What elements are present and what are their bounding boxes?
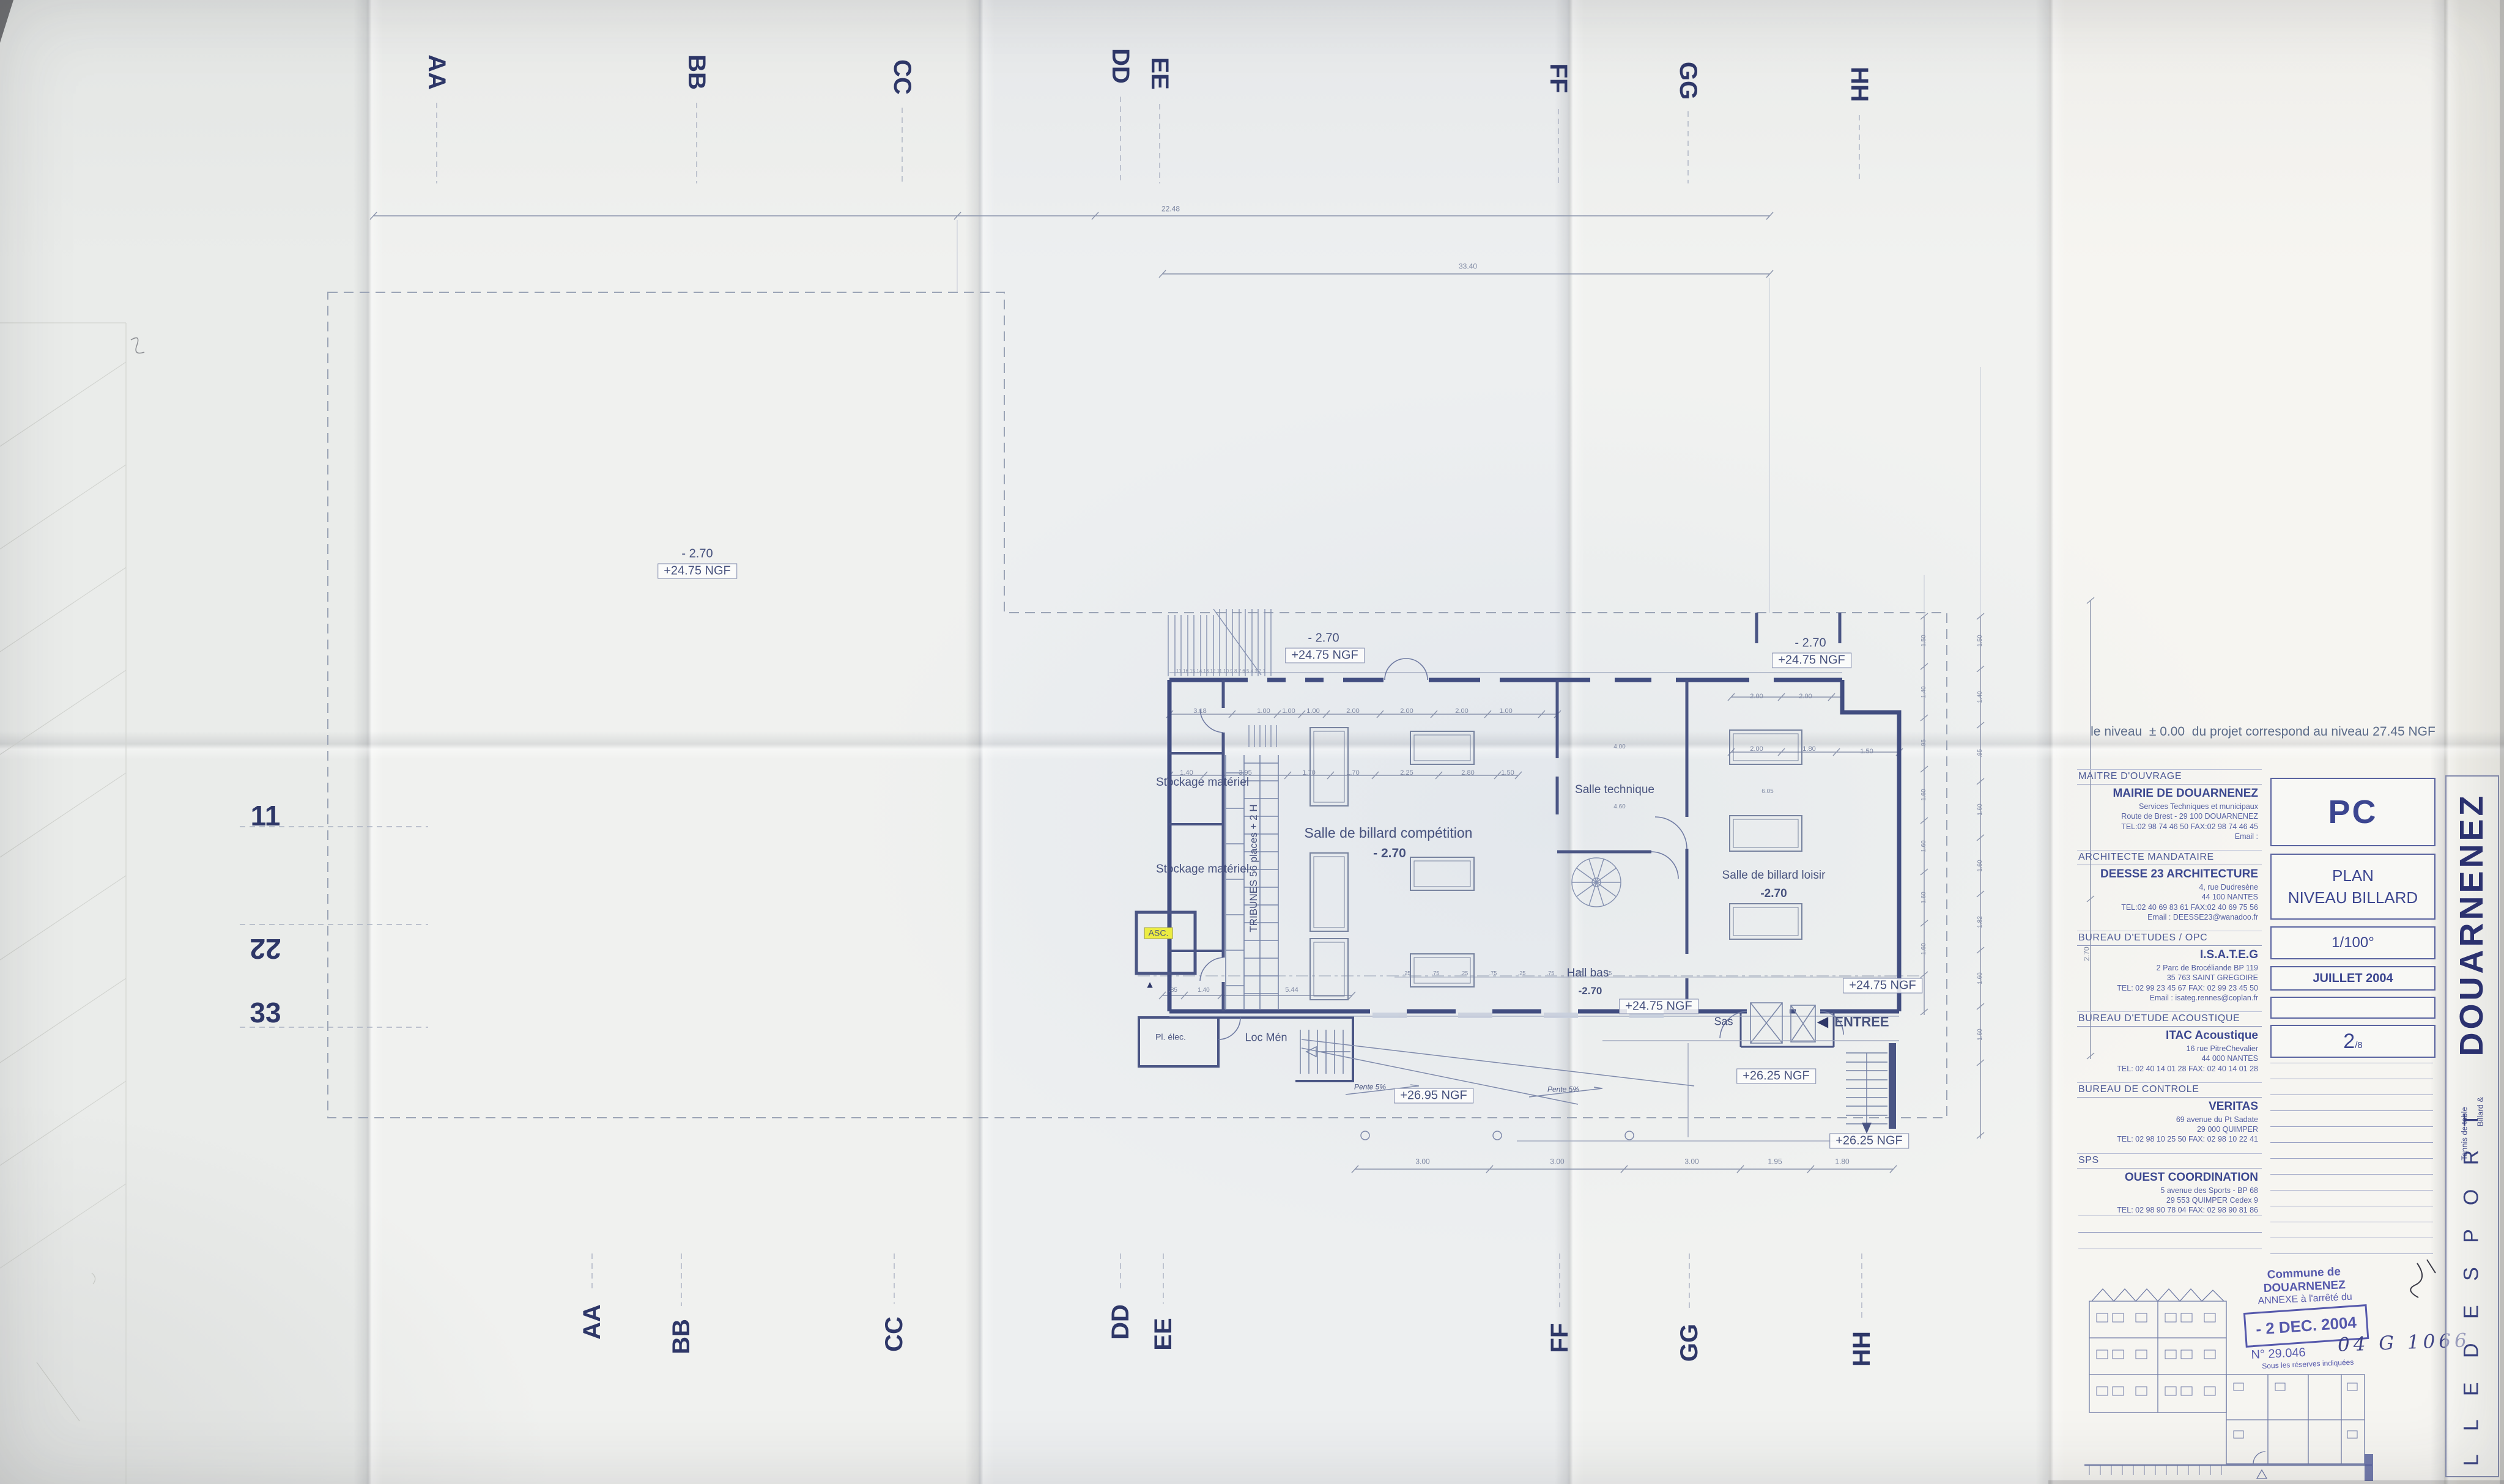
paper-edge bbox=[2048, 1480, 2504, 1484]
paper-edge bbox=[2500, 0, 2504, 1484]
photo-vignette bbox=[0, 0, 2504, 1484]
drawing-sheet: MAITRE D'OUVRAGEMAIRIE DE DOUARNENEZServ… bbox=[0, 0, 2504, 1484]
